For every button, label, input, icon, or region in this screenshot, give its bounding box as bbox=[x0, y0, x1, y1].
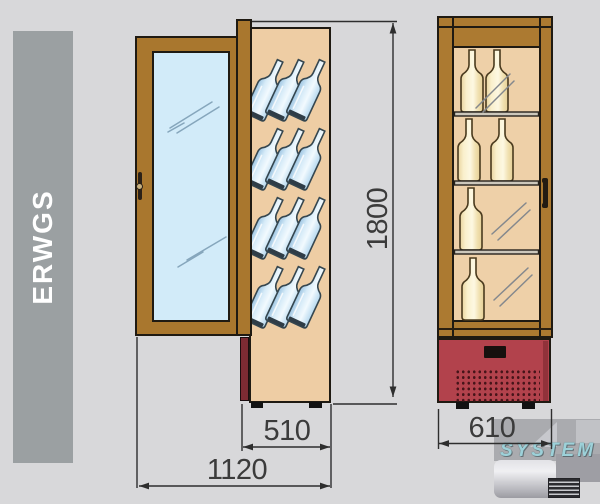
cabinet-side-panel bbox=[249, 27, 331, 403]
model-label: ERWGS bbox=[27, 189, 59, 304]
dimension-height-label: 1800 bbox=[363, 174, 393, 264]
dimension-width-label: 610 bbox=[443, 413, 541, 443]
control-display bbox=[484, 346, 506, 358]
tilted-bottle-rack bbox=[244, 56, 332, 328]
watermark-top-right-block bbox=[576, 420, 600, 443]
shelf bbox=[455, 181, 539, 185]
cabinet-front-post bbox=[236, 19, 252, 336]
cabinet-foot bbox=[456, 402, 469, 409]
compressor-shade bbox=[543, 341, 548, 401]
cabinet-foot bbox=[309, 402, 322, 408]
technical-drawing-page: ERWGS bbox=[0, 0, 600, 504]
door-glass-reflections bbox=[154, 53, 228, 320]
frame-top-rail-line bbox=[439, 26, 551, 28]
model-banner: ERWGS bbox=[13, 31, 73, 463]
shelf bbox=[455, 250, 539, 254]
watermark-badge bbox=[548, 478, 580, 498]
front-door-handle-icon bbox=[543, 180, 548, 206]
cabinet-foot bbox=[251, 402, 263, 408]
watermark-bottom-right-block bbox=[556, 454, 600, 482]
door-glass bbox=[152, 51, 230, 322]
watermark-cylinder-block bbox=[494, 460, 556, 498]
dimension-depth-label: 510 bbox=[242, 416, 332, 446]
shelf bbox=[455, 112, 539, 116]
tilted-bottle-rack-svg bbox=[251, 29, 329, 401]
bottom-rail-line bbox=[439, 328, 551, 330]
cabinet-foot bbox=[522, 402, 535, 409]
door-handle-icon bbox=[138, 172, 142, 200]
dimension-depth-door-open-label: 1120 bbox=[178, 455, 296, 485]
display-glass bbox=[452, 46, 541, 322]
compressor-unit bbox=[437, 338, 551, 403]
display-contents bbox=[454, 48, 539, 320]
vent-grille bbox=[454, 368, 540, 402]
door-handle-ring bbox=[136, 183, 143, 190]
compressor-side-panel bbox=[240, 337, 249, 401]
